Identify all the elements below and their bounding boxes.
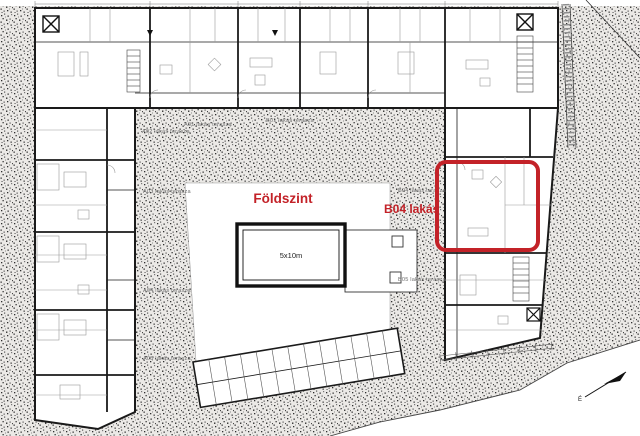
terrace-label: A02 lakás terasza — [142, 129, 191, 135]
terrace-label: A03 lakás terasza — [143, 189, 192, 195]
floor-plan-page: 5x10m A02 lakás terasza A01 lakás terasz… — [0, 0, 640, 436]
floor-title: Földszint — [253, 191, 313, 206]
wing-west — [35, 108, 135, 429]
wing-east — [445, 108, 558, 360]
terrace-label: A01 lakás terasza — [184, 122, 233, 128]
terrace-label: A04 lakás terasza — [143, 288, 192, 294]
pool: 5x10m — [237, 224, 417, 292]
terrace-label: B05 lakás terasza — [398, 277, 447, 283]
terrace-label: B01 lakás terasza — [266, 118, 315, 124]
elevator-icon — [43, 16, 59, 32]
floor-plan-canvas: 5x10m A02 lakás terasza A01 lakás terasz… — [0, 0, 640, 436]
apartment-label: B04 lakás — [384, 202, 440, 216]
pool-size-label: 5x10m — [280, 251, 303, 260]
elevator-icon — [517, 14, 533, 30]
elevator-icon — [527, 308, 540, 321]
wing-north — [35, 8, 558, 108]
terrace-label: B04 lakás terasza — [398, 188, 447, 194]
north-label: É — [578, 396, 582, 403]
terrace-label: A05 lakás terasza — [143, 356, 192, 362]
